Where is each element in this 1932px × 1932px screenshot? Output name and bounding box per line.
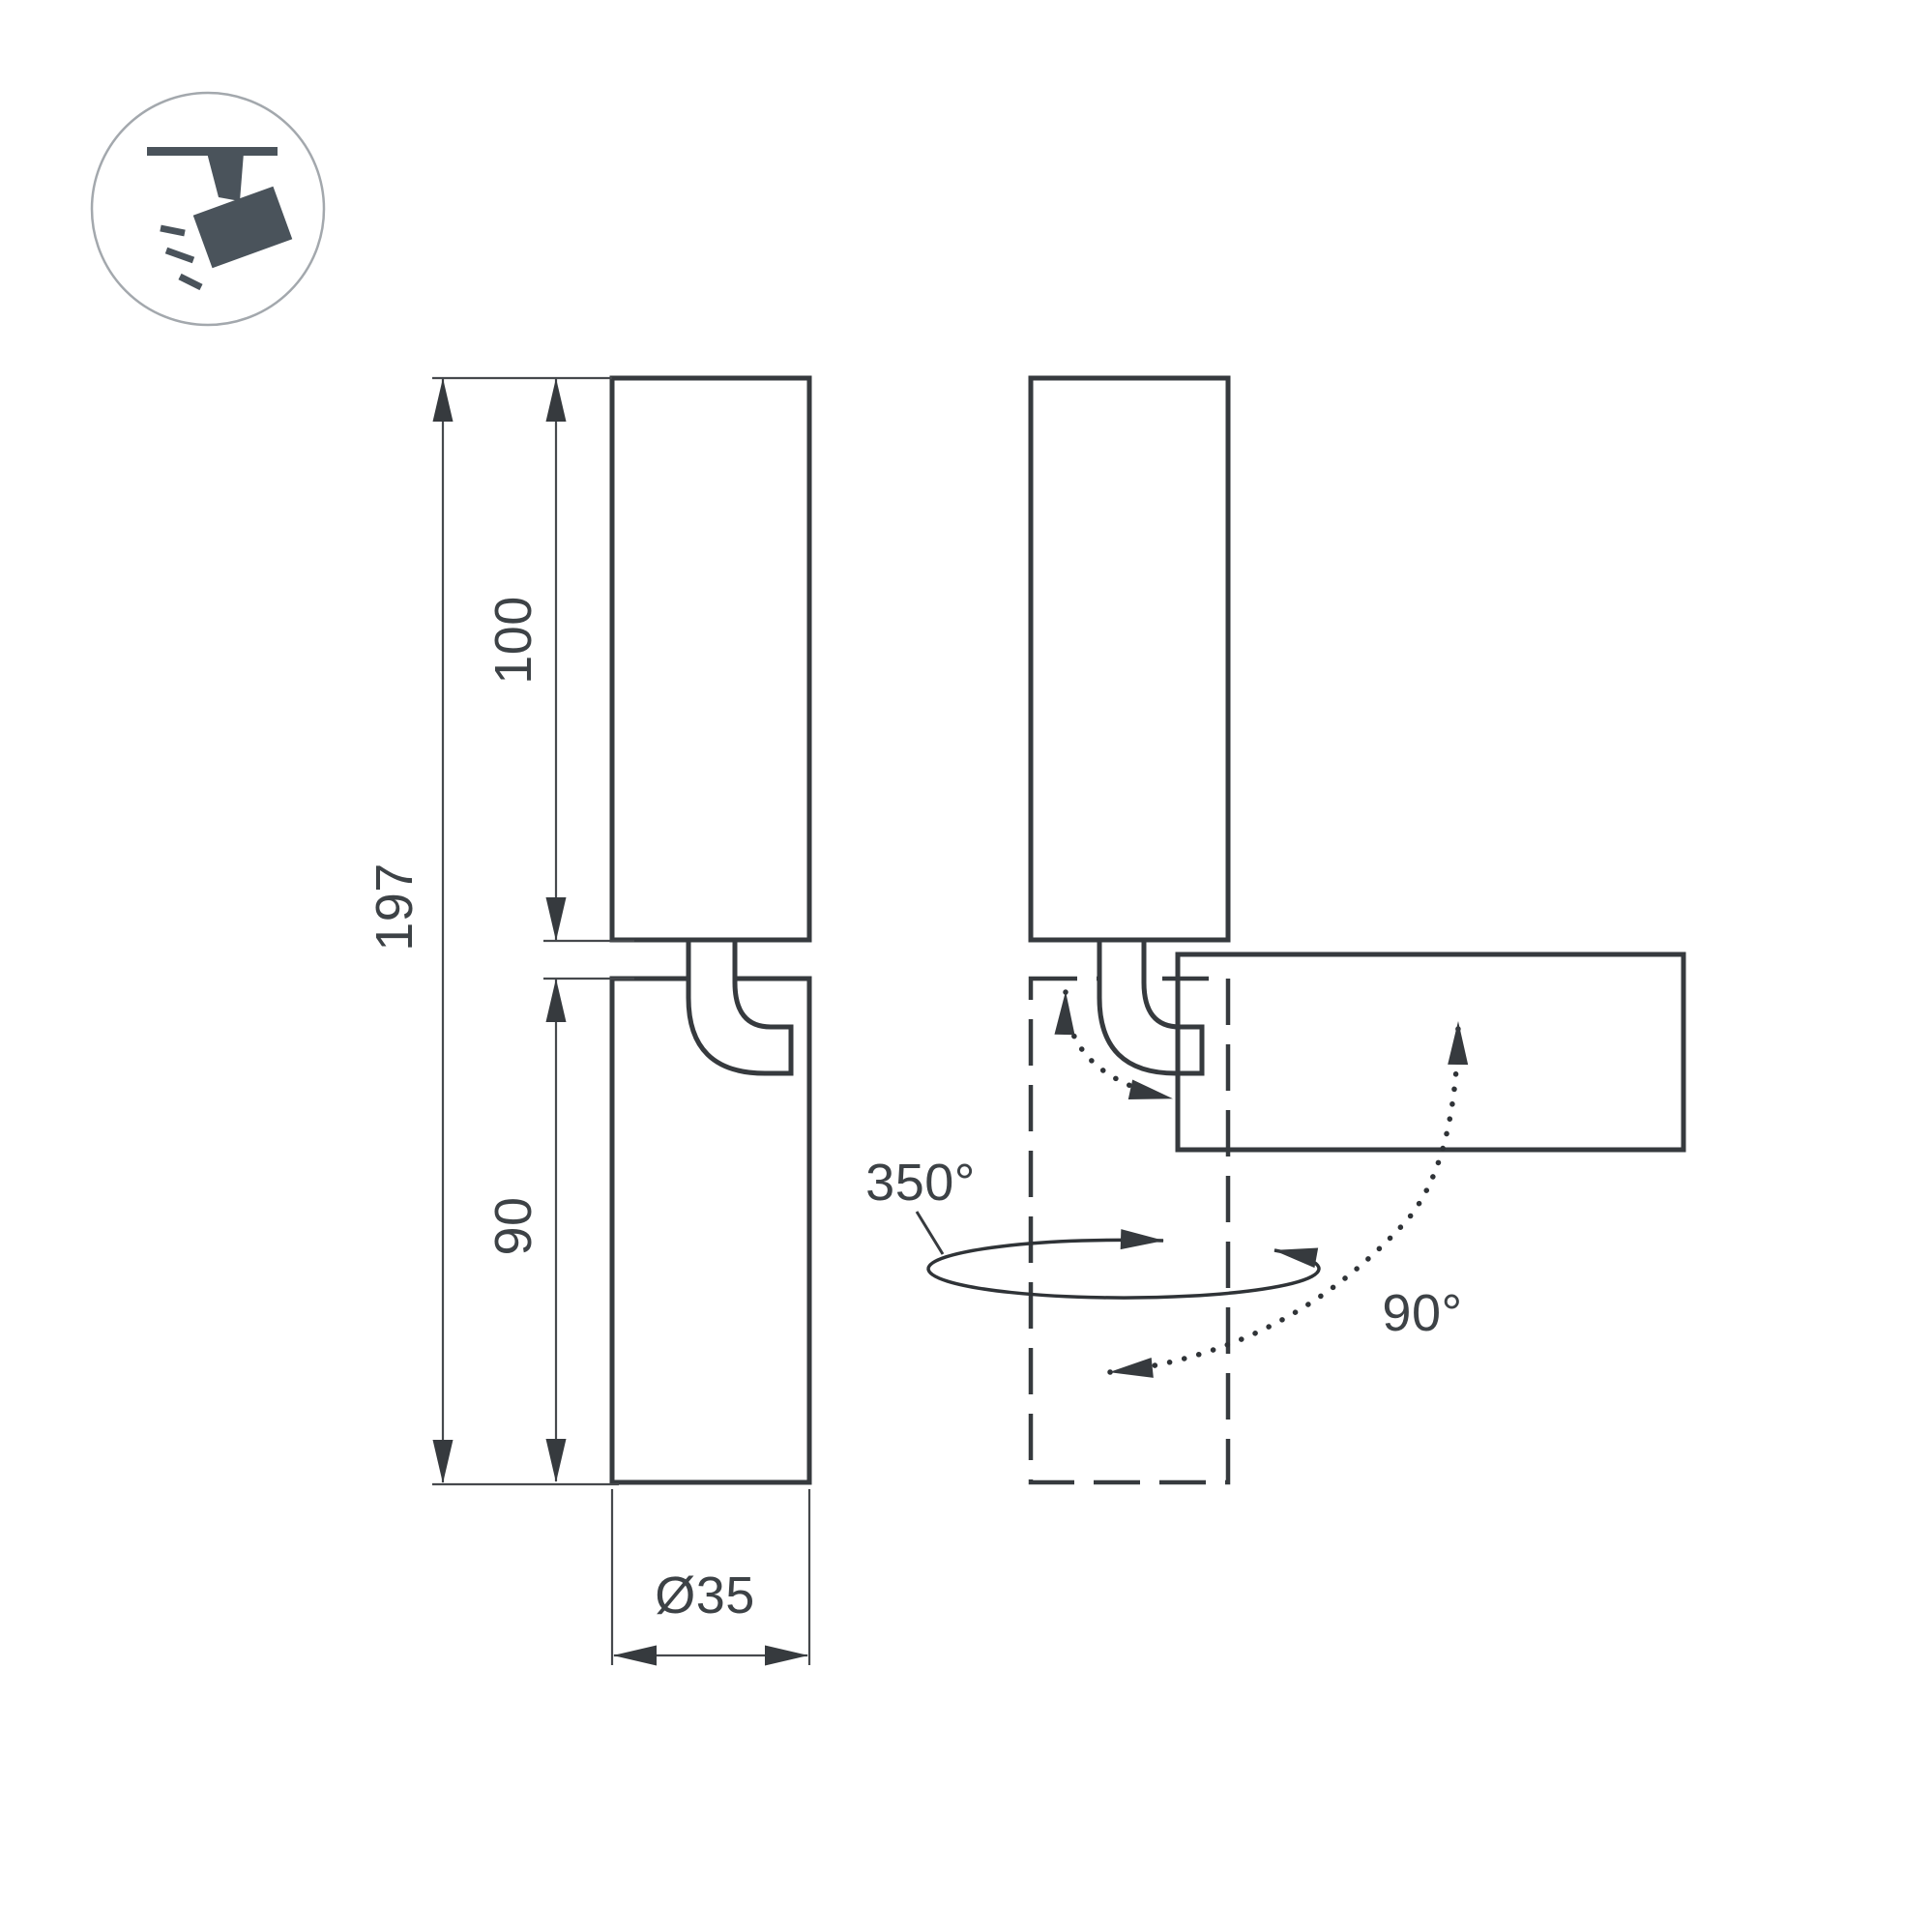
side-view-tilted [1031,378,1683,1482]
upper-body-height-label: 100 [484,596,542,685]
swivel-angle-label: 350° [865,1154,976,1212]
front-upper-cylinder [612,378,809,940]
total-height-label: 197 [366,863,424,951]
side-upper-cylinder [1031,378,1228,940]
tilt-angle-label: 90° [1382,1284,1462,1342]
tilted-lamp-head [1178,954,1683,1150]
swivel-ellipse-bottom-arc [928,1250,1319,1298]
swivel-label-leader-line [917,1212,943,1254]
icon-circle [92,93,324,325]
icon-light-ray [161,228,185,233]
front-view-straight [612,378,809,1482]
diagram-page: 350° 90° 197 100 90 Ø35 [0,0,1932,1932]
lower-body-height-label: 90 [484,1196,542,1255]
swivel-ellipse-top-arc [928,1240,1163,1269]
diameter-label: Ø35 [655,1566,755,1625]
track-spotlight-icon [92,93,324,325]
technical-drawing: 350° 90° 197 100 90 Ø35 [0,0,1932,1932]
